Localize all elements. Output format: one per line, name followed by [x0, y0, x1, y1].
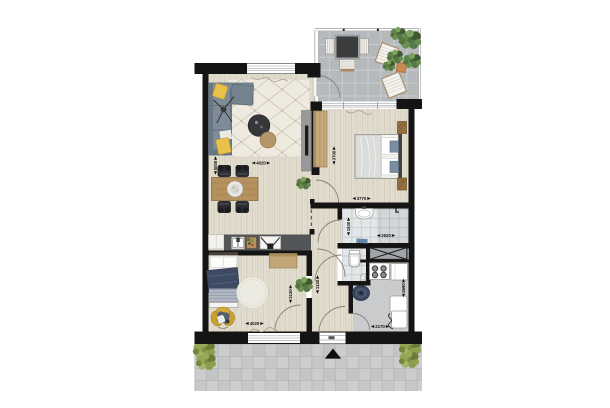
svg-text:2690: 2690	[401, 283, 406, 293]
svg-text:3770: 3770	[357, 196, 367, 201]
svg-text:1530: 1530	[346, 221, 351, 231]
svg-text:1130: 1130	[315, 279, 320, 289]
svg-text:3700: 3700	[332, 150, 337, 160]
svg-text:5000: 5000	[213, 160, 218, 170]
svg-text:4020: 4020	[256, 161, 266, 166]
svg-text:2170: 2170	[375, 324, 385, 329]
svg-text:4020: 4020	[250, 321, 260, 326]
svg-text:3130: 3130	[288, 289, 293, 299]
svg-text:2520: 2520	[381, 233, 391, 238]
